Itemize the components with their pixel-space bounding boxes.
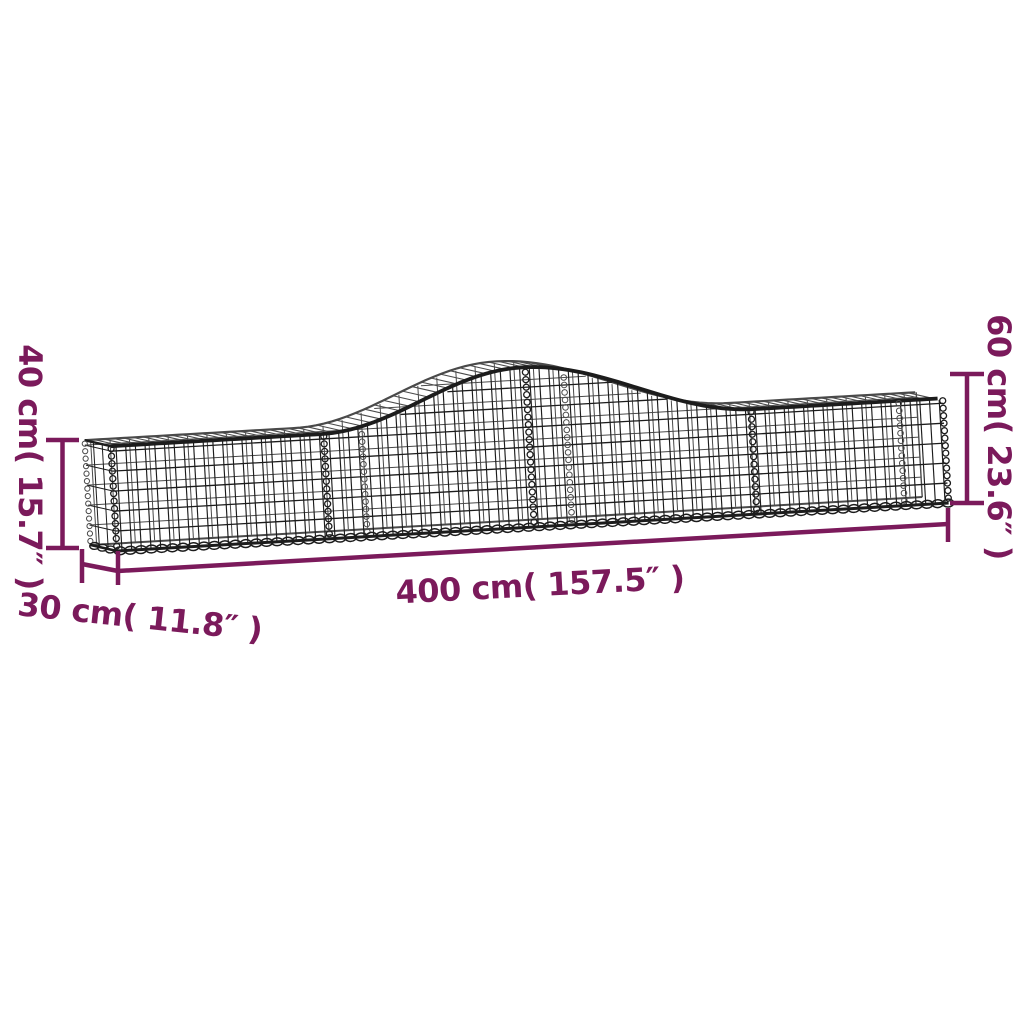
dimension-line-end-height (46, 440, 79, 548)
dimension-line-depth (82, 549, 118, 583)
gabion-diagram-canvas (0, 0, 1024, 1024)
dimension-label-peak-height: 60 cm( 23.6″ ) (980, 307, 1018, 567)
dimension-label-end-height: 40 cm( 15.7″ ) (11, 337, 49, 597)
gabion-basket-wireframe (79, 336, 954, 557)
dimension-diagram: 40 cm( 15.7″ ) 60 cm( 23.6″ ) 400 cm( 15… (0, 0, 1024, 1024)
dimension-line-peak-height (950, 374, 984, 503)
